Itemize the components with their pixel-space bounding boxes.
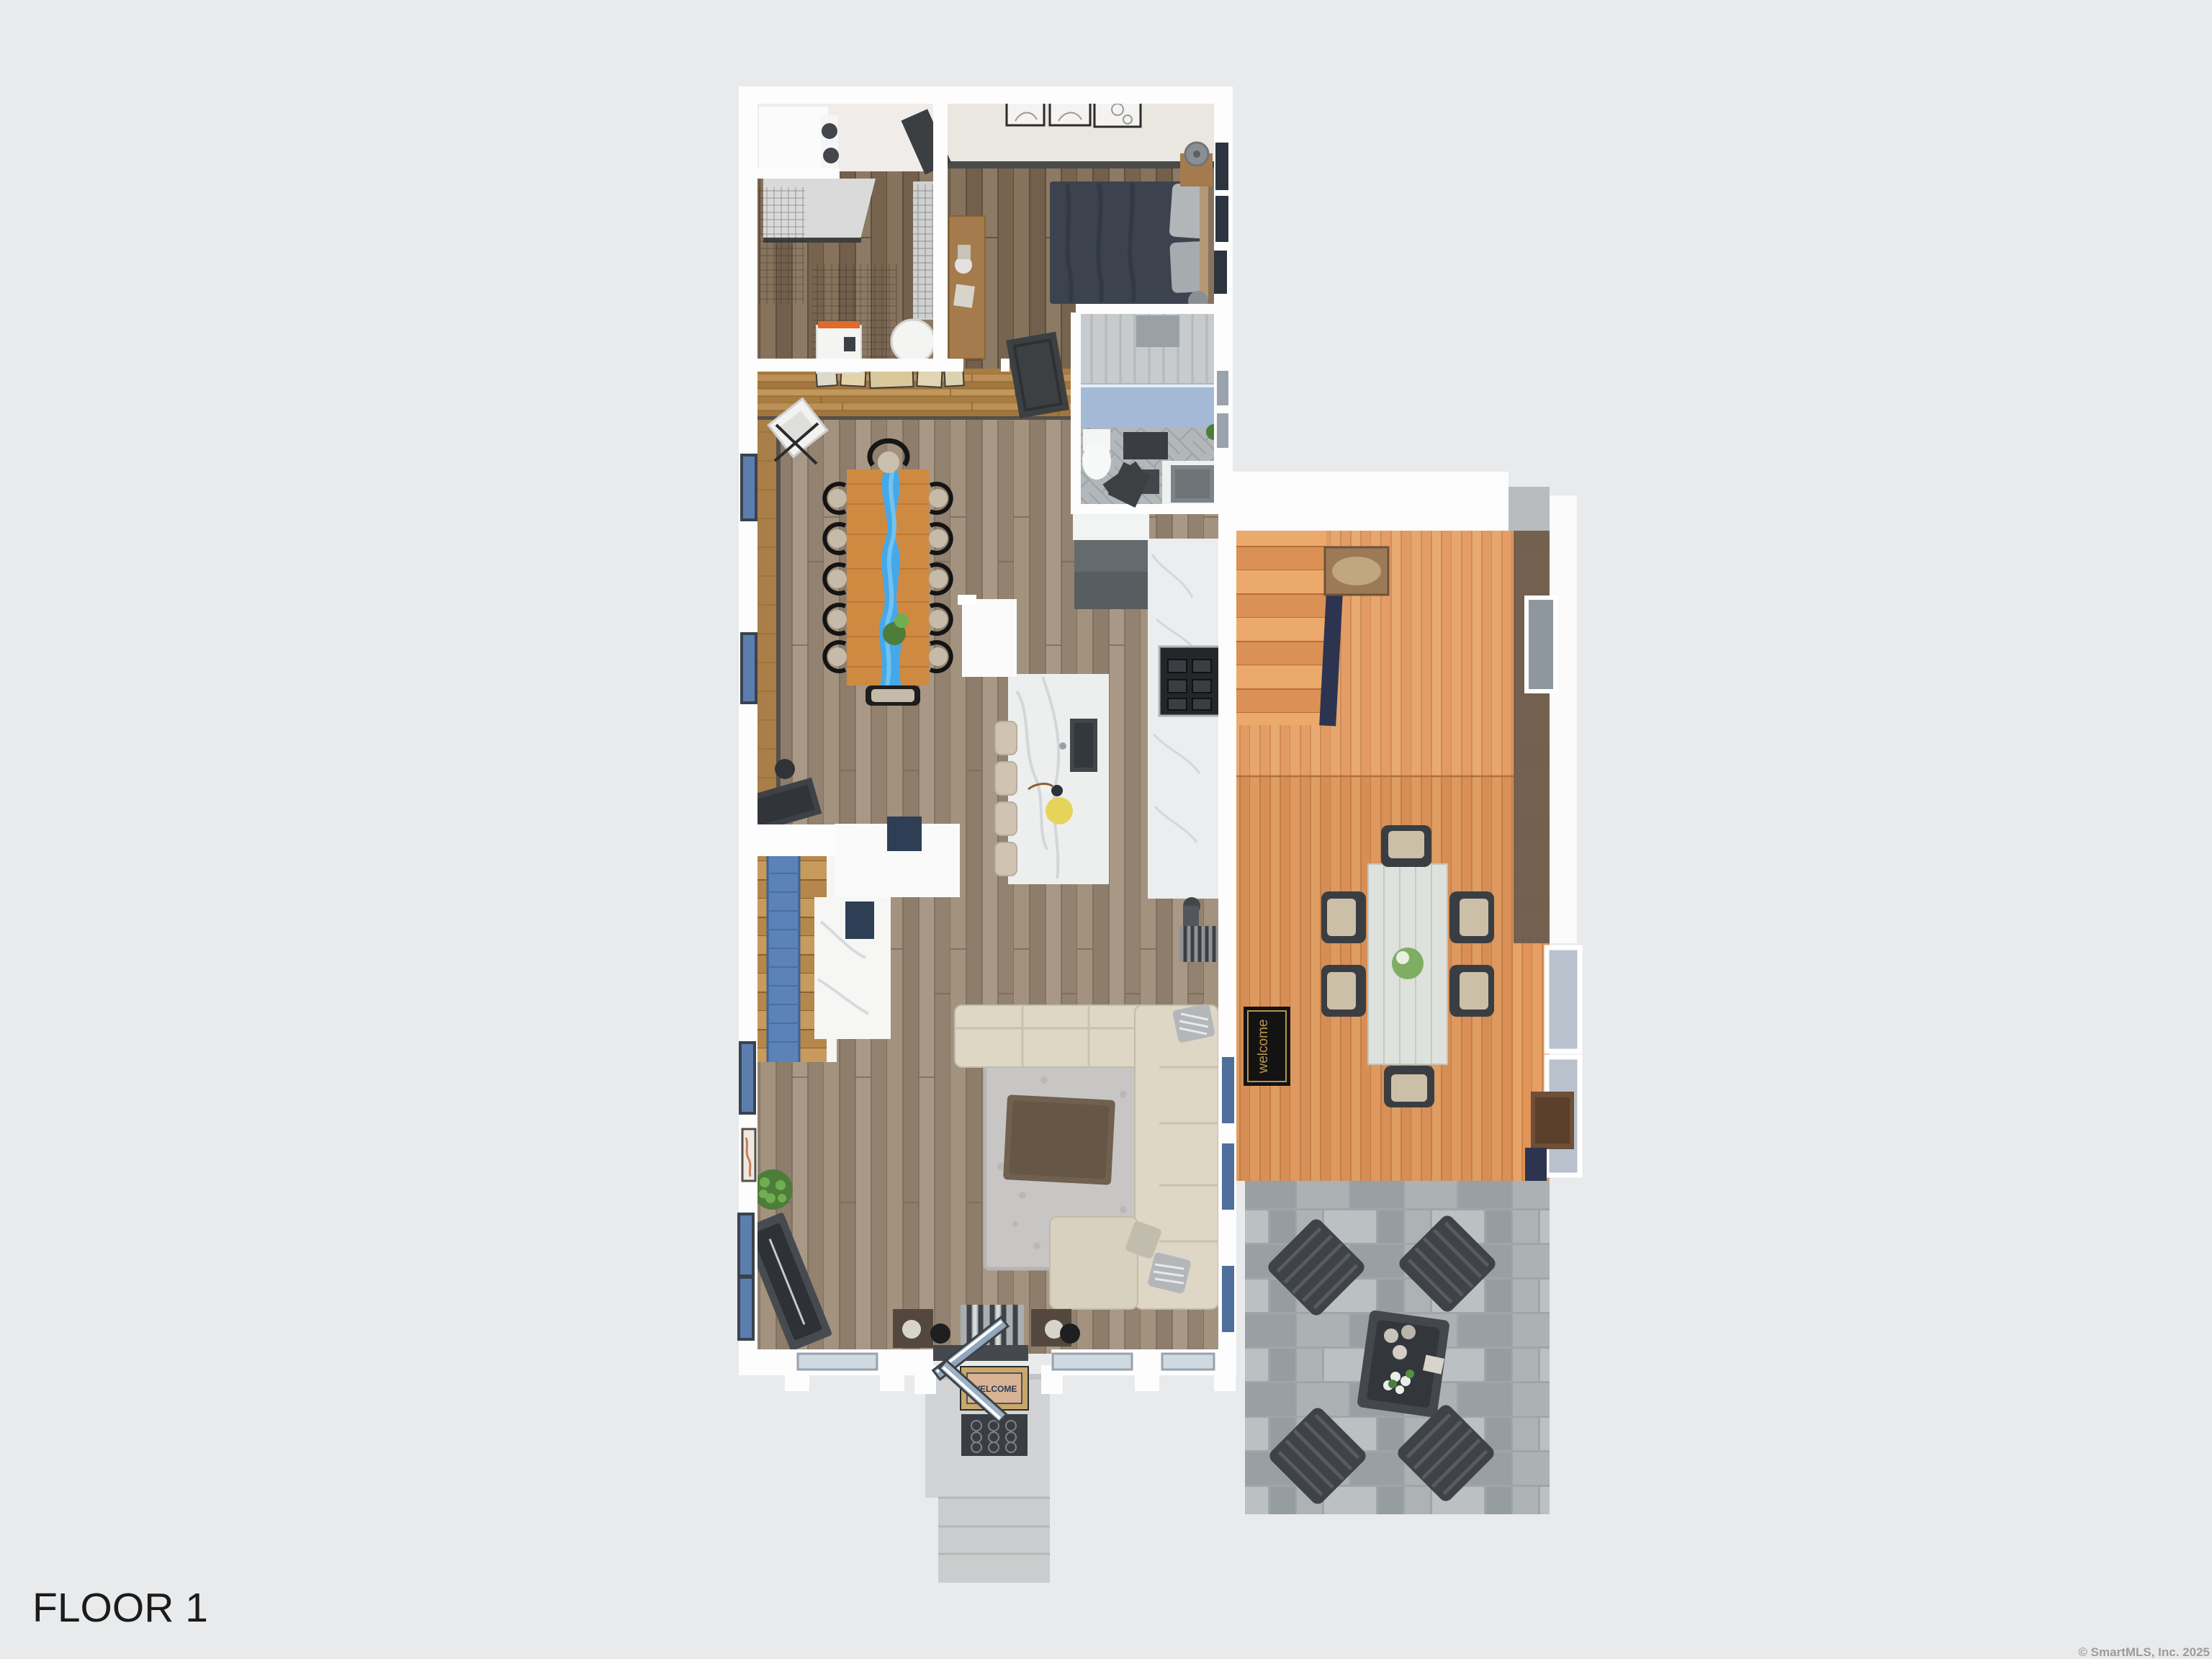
svg-text:welcome: welcome xyxy=(1256,1020,1271,1074)
svg-text:FLOOR 1: FLOOR 1 xyxy=(32,1585,208,1631)
svg-text:© SmartMLS, Inc. 2025: © SmartMLS, Inc. 2025 xyxy=(2078,1645,2210,1659)
